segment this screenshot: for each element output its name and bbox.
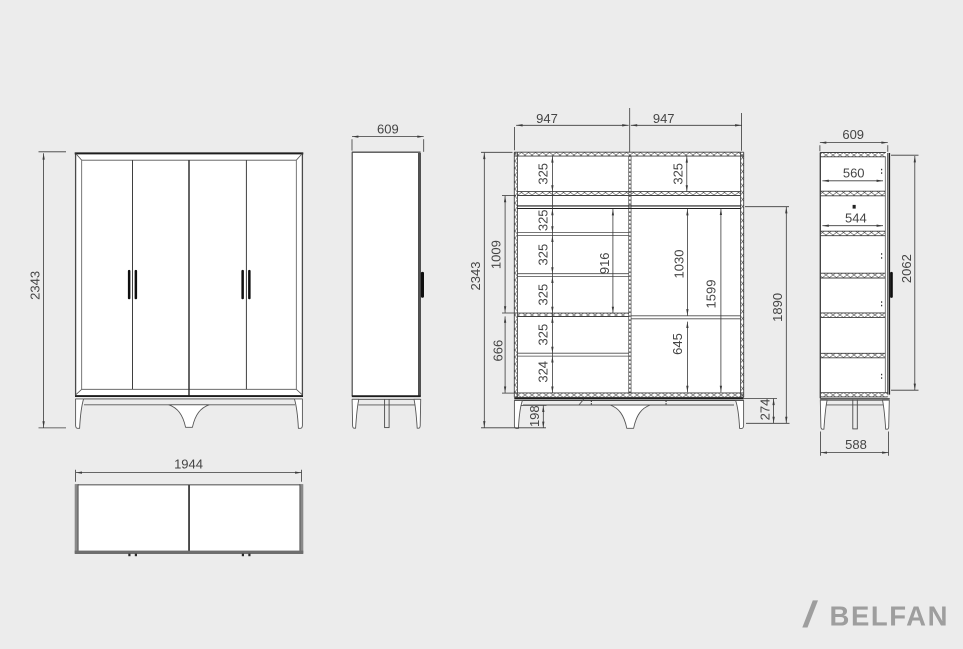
svg-text:1030: 1030 <box>672 250 687 279</box>
svg-text:609: 609 <box>377 121 399 136</box>
svg-text:560: 560 <box>843 165 865 180</box>
svg-text:544: 544 <box>845 210 867 225</box>
svg-text:2062: 2062 <box>899 254 914 283</box>
svg-text:325: 325 <box>535 209 550 231</box>
svg-text:947: 947 <box>653 111 675 126</box>
svg-text:645: 645 <box>670 333 685 355</box>
svg-text:1890: 1890 <box>770 293 785 322</box>
svg-text:325: 325 <box>535 244 550 266</box>
svg-text:1944: 1944 <box>174 456 203 471</box>
svg-text:325: 325 <box>535 284 550 306</box>
svg-text:274: 274 <box>757 399 772 421</box>
svg-text:325: 325 <box>535 324 550 346</box>
svg-text:666: 666 <box>491 340 506 362</box>
svg-text:2343: 2343 <box>28 271 43 300</box>
svg-text:325: 325 <box>671 163 686 185</box>
svg-text:325: 325 <box>535 163 550 185</box>
svg-text:2343: 2343 <box>468 262 483 291</box>
svg-text:BELFAN: BELFAN <box>830 600 950 631</box>
svg-text:1009: 1009 <box>488 240 503 269</box>
svg-text:324: 324 <box>535 361 550 383</box>
svg-text:1599: 1599 <box>704 280 719 309</box>
svg-text:947: 947 <box>536 111 558 126</box>
svg-text:588: 588 <box>845 437 867 452</box>
svg-text:916: 916 <box>597 252 612 274</box>
svg-text:609: 609 <box>842 127 864 142</box>
svg-text:198: 198 <box>527 405 542 427</box>
